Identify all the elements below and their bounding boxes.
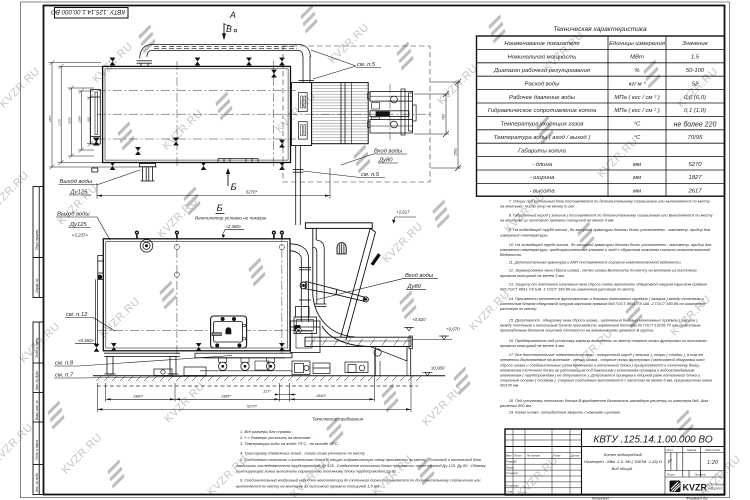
svg-text:Дата: Дата	[570, 454, 579, 458]
svg-text:0,6 (6,0): 0,6 (6,0)	[684, 95, 706, 101]
svg-text:см. п.5: см. п.5	[357, 62, 376, 68]
svg-text:«2,360»: «2,360»	[226, 224, 242, 229]
svg-text:Разраб.: Разраб.	[506, 459, 517, 463]
svg-text:Единицы измерения: Единицы измерения	[609, 41, 666, 47]
svg-text:Копировал: Копировал	[592, 497, 609, 500]
svg-text:1,5: 1,5	[691, 55, 700, 61]
svg-text:3. Температура воды на входе: 3. Температура воды на входе 70°С , на в…	[240, 441, 340, 446]
svg-text:KVZR: KVZR	[683, 483, 708, 493]
svg-text:ЗАВОД РУС: ЗАВОД РУС	[707, 487, 724, 491]
svg-text:кг/ м ³: кг/ м ³	[629, 81, 647, 87]
svg-text:Значение: Значение	[682, 41, 709, 47]
svg-text:Утв.: Утв.	[506, 489, 513, 493]
svg-text:±0,000: ±0,000	[431, 365, 445, 370]
svg-text:1. Все размеры для справок .: 1. Все размеры для справок .	[240, 429, 293, 434]
svg-text:1980*: 1980*	[133, 394, 143, 398]
svg-text:Б: Б	[231, 182, 237, 193]
svg-text:Температура воды ( вход / выхо: Температура воды ( вход / выход )	[494, 135, 591, 141]
svg-text:Изм: Изм	[506, 454, 513, 458]
svg-text:мм: мм	[633, 189, 641, 195]
svg-text:Вентилятор условно не показан: Вентилятор условно не показан	[195, 216, 267, 221]
svg-text:Ду125: Ду125	[70, 190, 88, 196]
svg-text:5270*: 5270*	[247, 404, 257, 408]
svg-text:%: %	[634, 68, 639, 74]
svg-text:Взам. инв. №: Взам. инв. №	[35, 400, 39, 420]
svg-text:Выход воды: Выход воды	[60, 179, 93, 185]
svg-text:на монтаже из листового прокат: на монтаже из листового проката толщиной…	[500, 218, 614, 223]
svg-text:11. Дополнительная арматура и: 11. Дополнительная арматура и КИП постав…	[509, 260, 682, 265]
svg-text:Лист: Лист	[666, 472, 675, 476]
svg-text:762: 762	[442, 114, 446, 120]
svg-text:°С: °С	[634, 135, 641, 141]
svg-text:2: 2	[714, 472, 717, 476]
svg-text:1827: 1827	[48, 115, 52, 122]
svg-text:Номинальная мощность: Номинальная мощность	[508, 55, 577, 61]
svg-text:№5 ГОСТ 8691-73/ ША -1 ГОСТ: №5 ГОСТ 8691-73/ ША -1 ГОСТ 390-86 на ша…	[500, 286, 635, 291]
svg-text:1770: 1770	[57, 119, 61, 126]
svg-text:мм: мм	[633, 162, 641, 168]
svg-text:Подп. и дата: Подп. и дата	[35, 440, 39, 460]
svg-text:«0,460»: «0,460»	[78, 338, 94, 343]
svg-text:Технические требования: Технические требования	[312, 417, 364, 422]
svg-text:Диапазон рабочего регулировани: Диапазон рабочего регулирования	[493, 68, 591, 74]
svg-text:Котел водогрейный: Котел водогрейный	[604, 452, 643, 457]
svg-text:Вход воды: Вход воды	[405, 273, 434, 279]
svg-text:КВТУ .125.14.1.00.000 ВО: КВТУ .125.14.1.00.000 ВО	[593, 435, 712, 446]
svg-text:Ду80: Ду80	[407, 284, 422, 290]
svg-text:КВТУ .125.14.1.00.000 ВО: КВТУ .125.14.1.00.000 ВО	[51, 8, 125, 15]
svg-text:«2,237»: «2,237»	[72, 233, 88, 238]
svg-text:Температура уходящих газов: Температура уходящих газов	[500, 122, 583, 128]
svg-text:50-100: 50-100	[686, 68, 705, 74]
svg-text:Перв. примен.: Перв. примен.	[35, 229, 39, 250]
svg-text:проката толщиной не менее 4: проката толщиной не менее 4 мм.	[500, 343, 565, 348]
svg-text:1626: 1626	[68, 117, 72, 124]
svg-text:МПа ( кгс / см ² ): МПа ( кгс / см ² )	[614, 108, 659, 114]
svg-text:Ду80: Ду80	[378, 158, 393, 164]
svg-text:Инв. № дубл.: Инв. № дубл.	[35, 370, 39, 390]
svg-text:Н.контр.: Н.контр.	[506, 483, 519, 487]
svg-text:1827: 1827	[688, 175, 702, 181]
svg-text:И: И	[668, 459, 672, 465]
svg-text:Справ. №: Справ. №	[35, 278, 39, 293]
svg-text:см. п.7: см. п.7	[55, 373, 74, 379]
svg-text:Ду125: Ду125	[69, 222, 87, 228]
svg-text:Вход воды: Вход воды	[374, 149, 403, 155]
svg-text:Пров.: Пров.	[506, 465, 514, 469]
svg-text:выполняется по месту на монтаж: выполняется по месту на монтаже из листо…	[236, 483, 381, 488]
svg-text:соединить последовательно труб: соединить последовательно трубопроводом …	[236, 463, 487, 468]
svg-text:Формат А2: Формат А2	[686, 496, 709, 500]
svg-text:50/100 мм.: 50/100 мм.	[500, 383, 519, 388]
svg-text:1300: 1300	[78, 116, 82, 123]
svg-text:Наименование показателя: Наименование показателя	[504, 41, 580, 47]
svg-text:0,1 (1,0): 0,1 (1,0)	[684, 108, 706, 114]
svg-text:127*: 127*	[263, 390, 271, 394]
svg-text:Подп. и дата: Подп. и дата	[35, 338, 39, 358]
svg-text:МПа ( кгс / см ² ): МПа ( кгс / см ² )	[614, 95, 659, 101]
svg-text:см. п.5: см. п.5	[361, 172, 380, 178]
svg-text:стальным опорам ( стойкам ).: стальным опорам ( стойкам ). Сварные сое…	[500, 378, 712, 383]
svg-text:Габариты котла: Габариты котла	[518, 148, 566, 154]
svg-text:- длина: - длина	[532, 162, 553, 168]
svg-text:прокладочным бетоном опытной п: прокладочным бетоном опытной плотности н…	[500, 328, 654, 333]
svg-text:52: 52	[692, 81, 699, 87]
svg-text:измерения температуры, предох: измерения температуры, предохранительные…	[500, 247, 711, 252]
svg-text:5270*: 5270*	[246, 190, 257, 195]
svg-text:Гидравлическое сопротивление к: Гидравлическое сопротивление котла	[488, 108, 597, 114]
svg-text:Инв. № подл.: Инв. № подл.	[35, 472, 39, 492]
svg-text:Масштаб: Масштаб	[705, 448, 720, 452]
svg-text:4. Трассировку обвязочных лин: 4. Трассировку обвязочных линий , линий …	[240, 451, 367, 456]
svg-text:см. п.8: см. п.8	[55, 361, 74, 367]
svg-text:Техническая характеристика: Техническая характеристика	[553, 26, 647, 33]
svg-text:°С: °С	[634, 122, 641, 128]
svg-text:Расход воды: Расход воды	[525, 81, 561, 87]
svg-text:см. п.12: см. п.12	[66, 312, 88, 318]
svg-text:+0,820: +0,820	[412, 317, 426, 322]
svg-text:Вид общий .: Вид общий .	[612, 466, 635, 471]
svg-text:Масса: Масса	[687, 448, 696, 452]
svg-text:Выход воды: Выход воды	[57, 212, 90, 218]
svg-text:Heatexpert - КВм -1,5- КБ ( ТШ: Heatexpert - КВм -1,5- КБ ( ТШПМ -1,45) …	[584, 459, 662, 464]
svg-text:Лит.: Лит.	[665, 448, 673, 452]
svg-text:Т.контр.: Т.контр.	[506, 471, 519, 475]
svg-text:70/95: 70/95	[688, 135, 703, 141]
svg-text:+2,617: +2,617	[396, 210, 410, 215]
svg-text:- ширина: - ширина	[530, 175, 556, 181]
svg-text:измерения температуры.: измерения температуры.	[500, 232, 548, 237]
svg-text:Ведомости.: Ведомости.	[500, 252, 522, 257]
svg-text:1:20: 1:20	[707, 460, 719, 466]
svg-text:№ докум.: № докум.	[527, 454, 541, 458]
svg-text:не более 220: не более 220	[674, 121, 717, 129]
svg-text:910: 910	[86, 117, 90, 122]
svg-text:- высота: - высота	[529, 189, 555, 195]
svg-text:Подп.: Подп.	[553, 454, 561, 458]
svg-text:5270: 5270	[688, 162, 702, 168]
svg-text:Б: Б	[217, 203, 223, 214]
svg-text:МВт: МВт	[630, 55, 644, 61]
svg-text:19. Канал шлако -золоудаления: 19. Канал шлако -золоудаления закрыть съ…	[509, 409, 621, 414]
svg-text:1501: 1501	[454, 148, 458, 156]
svg-text:А: А	[229, 10, 236, 20]
svg-text:+0,670: +0,670	[446, 327, 460, 332]
svg-text:Рабочее давление воды: Рабочее давление воды	[509, 95, 576, 101]
svg-text:шунтирующей линии выполнить па: шунтирующей линии выполнить параллельно …	[236, 469, 398, 474]
svg-text:2617: 2617	[687, 189, 702, 195]
svg-text:18. Под установку топочного б: 18. Под установку топочного болока В фун…	[509, 398, 709, 403]
svg-text:на монтаже. Число опор не мен: на монтаже. Число опор не менее 6 шт.	[500, 203, 575, 208]
svg-text:решетки 500 мм.: решетки 500 мм.	[499, 403, 532, 408]
svg-text:растворе по месту.: растворе по месту.	[499, 306, 537, 311]
svg-text:Лист: Лист	[513, 454, 522, 458]
svg-text:2. « » Размеры уточнить на: 2. « » Размеры уточнить на монтаже .	[239, 435, 313, 440]
svg-text:Листов: Листов	[693, 472, 706, 476]
svg-text:проката толщиной не менее 3: проката толщиной не менее 3 мм.	[500, 273, 565, 278]
svg-text:1985*: 1985*	[221, 394, 231, 398]
svg-text:6. Соединительный воздушный к: 6. Соединительный воздушный короб от вен…	[240, 478, 481, 483]
svg-text:1540*: 1540*	[316, 394, 326, 398]
svg-text:мм: мм	[633, 175, 641, 181]
svg-text:5. Соединения топочного и кот: 5. Соединения топочного и котельного бло…	[240, 457, 481, 462]
